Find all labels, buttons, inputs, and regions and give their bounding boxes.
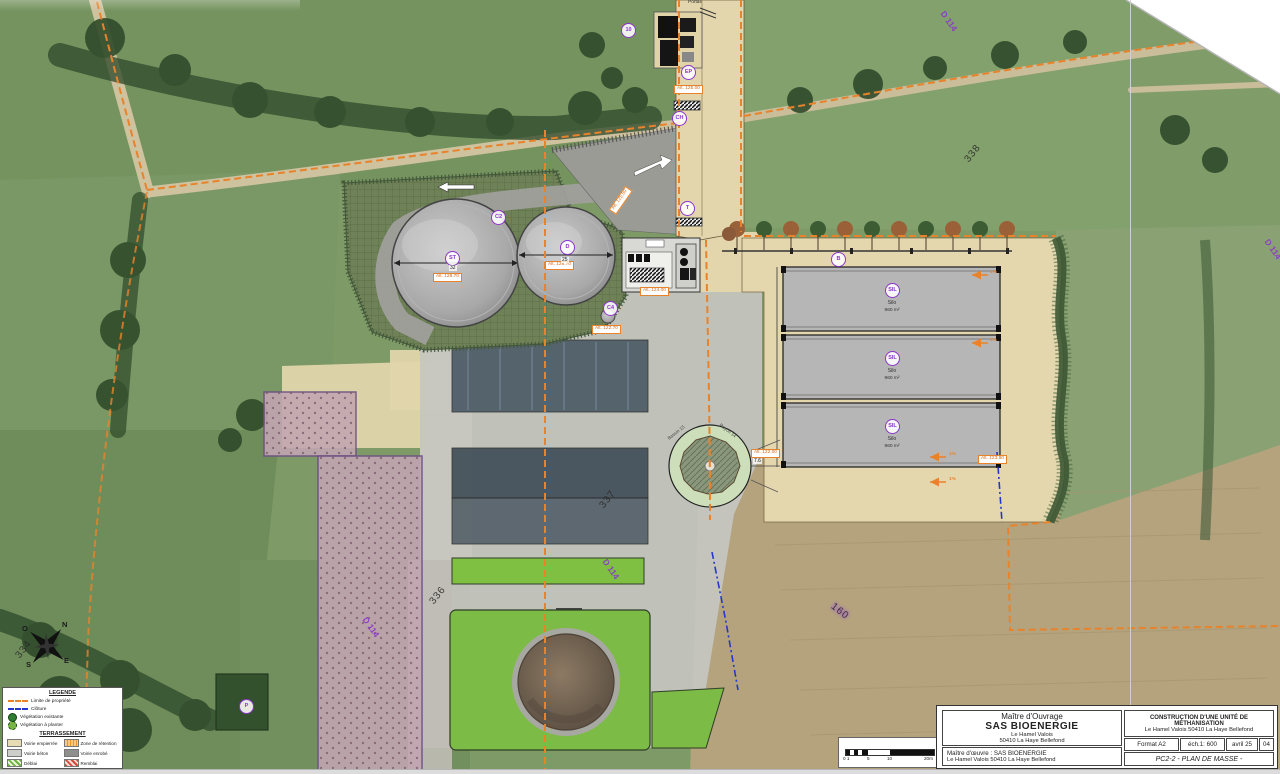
slope-label: 1% [949,452,956,457]
aerial-site-map [0,0,1280,774]
badge-sil-2: SIL [885,351,900,366]
legend-item-label: Zone de rétention [81,741,117,746]
legend-item-label: Déblai [24,761,37,766]
project-cell: CONSTRUCTION D'UNE UNITÉ DE MÉTHANISATIO… [1124,710,1274,737]
owner-name: SAS BIOENERGIE [985,721,1078,732]
scale-tick: 5 [867,756,870,761]
legend-item-label: Voirie béton [24,751,48,756]
badge-d: D [560,240,575,255]
swatch-voirie-enrobe [64,749,79,757]
silo-2 [781,334,1001,400]
tank-diameter-label: 32 [449,265,457,271]
legend-box: LEGENDE Limite de propriété Clôture Végé… [2,687,123,769]
altitude-label: Alt. 122.00 [751,449,780,458]
format-cell: Format A2 [1124,738,1179,751]
compass-north: N [62,620,67,629]
basin-dim-label: 7.6 [753,458,762,464]
doc-title-cell: PC2-2 - PLAN DE MASSE - [1124,752,1274,766]
swatch-zone-retention [64,739,79,747]
legend-item-label: Voirie enrobé [81,751,108,756]
legend-item-label: Limite de propriété [31,699,71,704]
altitude-label: Alt. 125.00 [674,85,703,94]
scale-label: éch.1: 600 [1188,741,1217,748]
altitude-label: Alt. 128.70 [545,261,574,270]
silo-3 [781,402,1001,468]
legend-item-label: Voirie empierrée [24,741,57,746]
silo-label: Silo [860,300,924,306]
owner-role: Maître d'Ouvrage [1001,712,1063,721]
project-address: Le Hamel Valois 50410 La Haye Bellefond [1145,727,1254,733]
silo-label: Silo [860,368,924,374]
title-block: Maître d'Ouvrage SAS BIOENERGIE Le Hamel… [936,705,1278,769]
scale-bar: 0 1 5 10 20m [838,737,939,768]
legend-item-label: Clôture [31,707,46,712]
swatch-voirie-beton [7,749,22,757]
legend-title: LEGENDE [3,690,122,696]
moe-line-1: Maître d'œuvre : SAS BIOENERGIE [947,750,1047,757]
viewer-bottom-edge [0,769,1280,774]
swatch-remblai [64,759,79,767]
scale-tick: 0 1 [843,756,849,761]
badge-sil-1: SIL [885,283,900,298]
silo-area-label: 960 m² [860,308,924,313]
badge-10: 10 [621,23,636,38]
owner-cell: Maître d'Ouvrage SAS BIOENERGIE Le Hamel… [942,710,1122,746]
date-label: avril 25 [1232,741,1252,748]
slope-label: 1% [949,477,956,482]
swatch-deblai [7,759,22,767]
silo-area-label: 960 m² [860,444,924,449]
tank-diameter-label: 25 [561,257,569,263]
tank-digester-d [517,207,615,305]
badge-sil-3: SIL [885,419,900,434]
slope-label: 1% [990,338,997,343]
legend-terrassement-title: TERRASSEMENT [3,731,122,737]
silo-1 [781,266,1001,332]
legend-item-label: Remblai [81,761,98,766]
badge-st: ST [445,251,460,266]
silo-area-label: 960 m² [860,376,924,381]
moe-cell: Maître d'œuvre : SAS BIOENERGIE Le Hamel… [942,747,1122,766]
swatch-voirie-empierree [7,739,22,747]
fence-line-sample [8,708,28,710]
moe-line-2: Le Hamel Valois 50410 La Haye Bellefond [947,757,1056,763]
badge-b: B [831,252,846,267]
project-title: CONSTRUCTION D'UNE UNITÉ DE MÉTHANISATIO… [1125,715,1273,727]
legend-item-label: Végétation à planter [20,723,63,728]
property-line-sample [8,700,28,702]
corner-watermark [0,0,300,11]
compass-south: S [26,660,31,669]
tree-planted-icon [8,721,17,730]
badge-c2: C2 [491,210,506,225]
date-cell: avril 25 [1226,738,1258,751]
altitude-label: Alt. 123.80 [978,455,1007,464]
document-title: PC2-2 - PLAN DE MASSE - [1156,756,1243,763]
sheet-number-cell: 04 [1259,738,1274,751]
silo-label: Silo [860,436,924,442]
scale-tick: 20m [924,756,933,761]
altitude-label: Alt. 128.70 [433,273,462,282]
format-label: Format A2 [1137,741,1166,748]
legend-item-label: Végétation existante [20,715,63,720]
slope-label: 1% [990,270,997,275]
badge-p: P [239,699,254,714]
badge-ch: CH [672,111,687,126]
owner-address-2: 50410 La Haye Bellefond [999,738,1064,744]
scale-tick: 10 [887,756,892,761]
site-plan-sheet: Portail EP CH 10 T C2 ST D C4 B SIL SIL … [0,0,1280,774]
badge-ep: EP [681,65,696,80]
compass-east: E [64,656,69,665]
badge-c4: C4 [603,301,618,316]
scale-cell: éch.1: 600 [1180,738,1225,751]
badge-t: T [680,201,695,216]
compass-west: O [22,624,28,633]
altitude-label: Alt. 122.70 [592,325,621,334]
sheet-number: 04 [1263,741,1270,748]
altitude-label: Alt. 124.00 [640,287,669,296]
scale-bar-segments [845,749,935,756]
